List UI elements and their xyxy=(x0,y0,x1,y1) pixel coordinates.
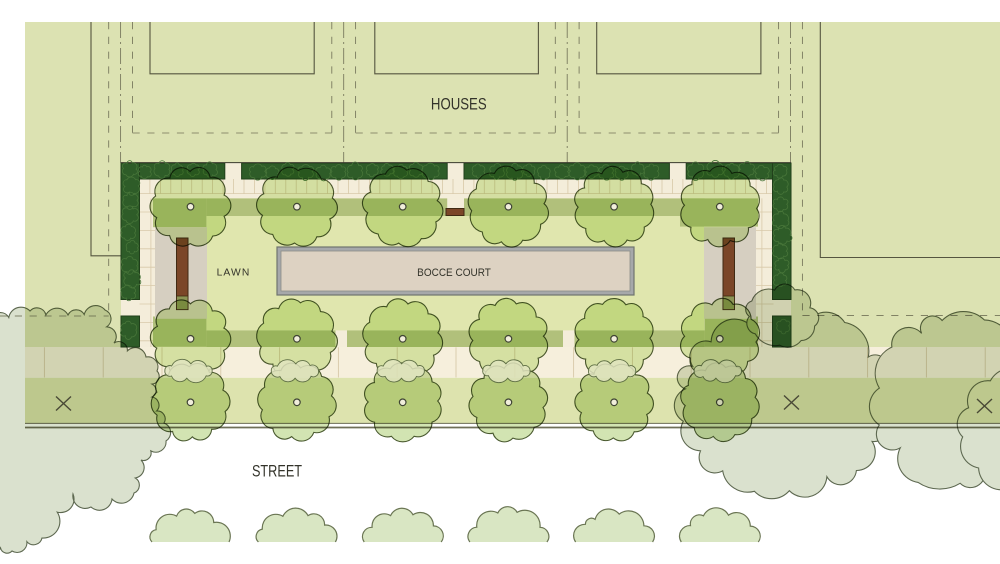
svg-text:LAWN: LAWN xyxy=(217,268,251,279)
svg-text:STREET: STREET xyxy=(252,463,302,481)
svg-text:HOUSES: HOUSES xyxy=(431,95,487,114)
svg-text:BOCCE COURT: BOCCE COURT xyxy=(417,266,491,279)
